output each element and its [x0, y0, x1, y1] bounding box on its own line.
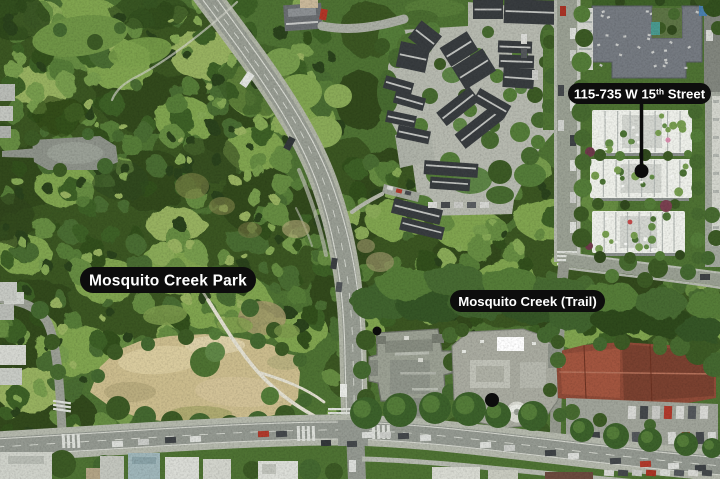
svg-text:Mosquito Creek Park: Mosquito Creek Park [89, 273, 247, 290]
svg-text:Mosquito Creek (Trail): Mosquito Creek (Trail) [458, 294, 597, 309]
svg-text:115-735 W 15th Street: 115-735 W 15th Street [574, 87, 706, 102]
